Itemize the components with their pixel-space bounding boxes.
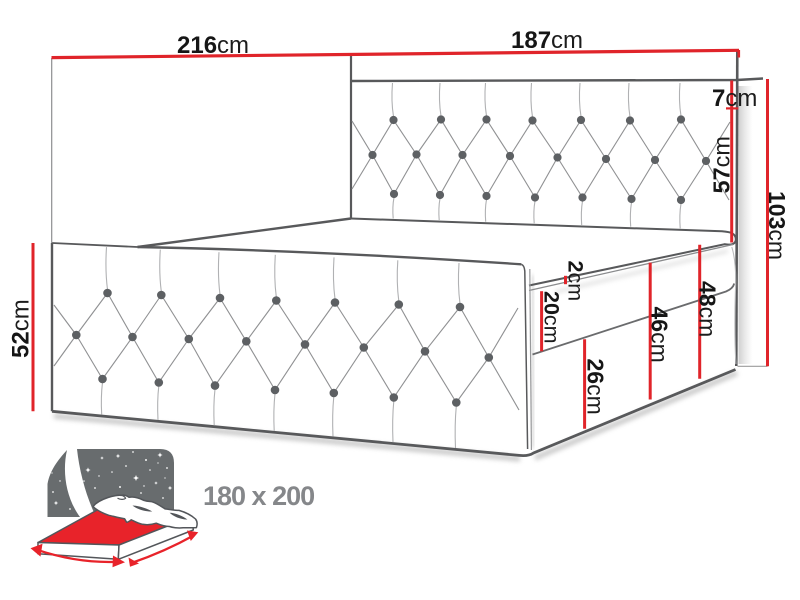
svg-text:52cm: 52cm xyxy=(8,299,35,358)
svg-text:48cm: 48cm xyxy=(695,281,721,337)
svg-text:57cm: 57cm xyxy=(709,136,735,193)
svg-text:2cm: 2cm xyxy=(564,261,588,302)
svg-text:103cm: 103cm xyxy=(764,191,790,260)
svg-text:20cm: 20cm xyxy=(540,291,564,344)
svg-text:46cm: 46cm xyxy=(647,307,673,363)
svg-text:7cm: 7cm xyxy=(712,85,757,112)
svg-text:180 x 200: 180 x 200 xyxy=(203,481,314,511)
svg-text:26cm: 26cm xyxy=(583,359,609,415)
svg-text:187cm: 187cm xyxy=(511,27,583,54)
svg-text:216cm: 216cm xyxy=(177,32,249,59)
